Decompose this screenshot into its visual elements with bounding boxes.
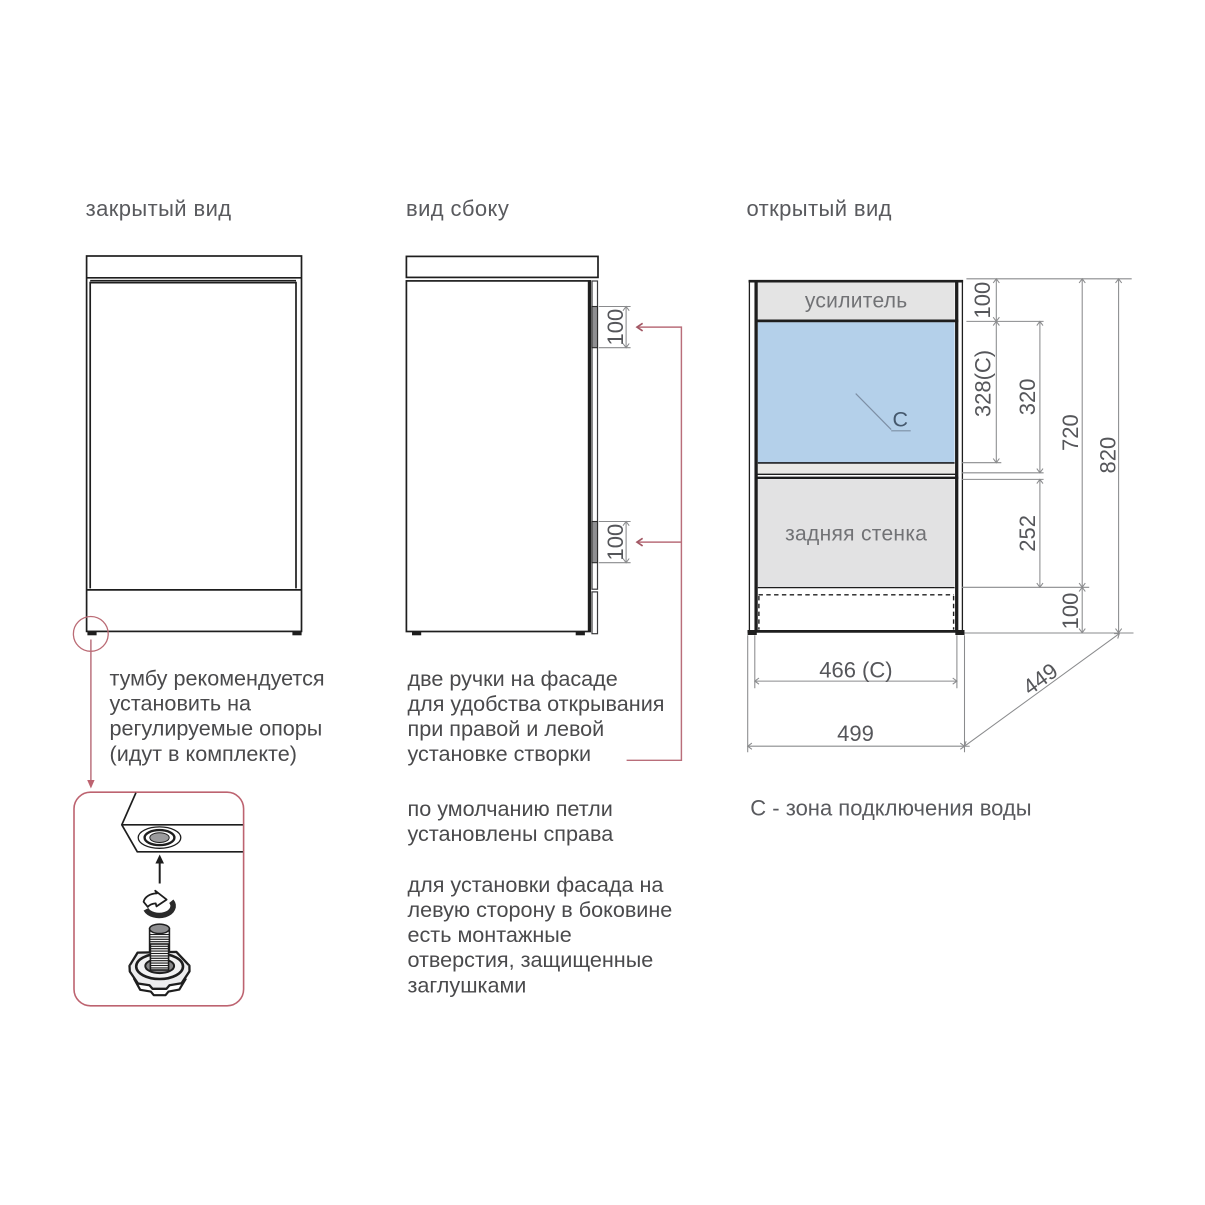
svg-text:320: 320 bbox=[1015, 379, 1040, 416]
svg-text:открытый вид: открытый вид bbox=[747, 196, 892, 221]
svg-text:закрытый вид: закрытый вид bbox=[86, 196, 232, 221]
svg-text:720: 720 bbox=[1058, 414, 1083, 451]
svg-text:100: 100 bbox=[1058, 593, 1083, 630]
svg-text:есть монтажные: есть монтажные bbox=[408, 922, 572, 947]
svg-text:C - зона подключения воды: C - зона подключения воды bbox=[750, 796, 1031, 821]
svg-text:установке створки: установке створки bbox=[408, 741, 592, 766]
svg-text:100: 100 bbox=[970, 282, 995, 319]
svg-text:466 (C): 466 (C) bbox=[819, 657, 892, 682]
svg-text:для установки фасада на: для установки фасада на bbox=[408, 872, 665, 897]
svg-text:отверстия, защищенные: отверстия, защищенные bbox=[408, 947, 654, 972]
svg-text:усилитель: усилитель bbox=[805, 290, 908, 313]
svg-text:заглушками: заглушками bbox=[408, 972, 527, 997]
svg-text:C: C bbox=[893, 407, 909, 431]
svg-text:по умолчанию петли: по умолчанию петли bbox=[408, 796, 613, 821]
svg-text:(идут в комплекте): (идут в комплекте) bbox=[110, 741, 297, 766]
svg-text:при правой и левой: при правой и левой bbox=[408, 716, 605, 741]
svg-text:252: 252 bbox=[1015, 515, 1040, 552]
svg-text:вид сбоку: вид сбоку bbox=[406, 196, 509, 221]
svg-text:регулируемые опоры: регулируемые опоры bbox=[110, 716, 323, 741]
svg-text:установить на: установить на bbox=[110, 691, 253, 716]
svg-text:задняя стенка: задняя стенка bbox=[785, 523, 927, 546]
svg-text:100: 100 bbox=[603, 309, 628, 346]
svg-text:499: 499 bbox=[837, 721, 874, 746]
svg-text:820: 820 bbox=[1096, 437, 1121, 474]
svg-text:тумбу рекомендуется: тумбу рекомендуется bbox=[110, 666, 325, 691]
svg-text:100: 100 bbox=[603, 524, 628, 561]
svg-text:левую сторону в боковине: левую сторону в боковине bbox=[408, 897, 673, 922]
svg-text:установлены справа: установлены справа bbox=[408, 821, 615, 846]
svg-text:для удобства открывания: для удобства открывания bbox=[408, 691, 665, 716]
svg-text:328(C): 328(C) bbox=[971, 350, 996, 417]
svg-text:две ручки на фасаде: две ручки на фасаде bbox=[408, 666, 618, 691]
